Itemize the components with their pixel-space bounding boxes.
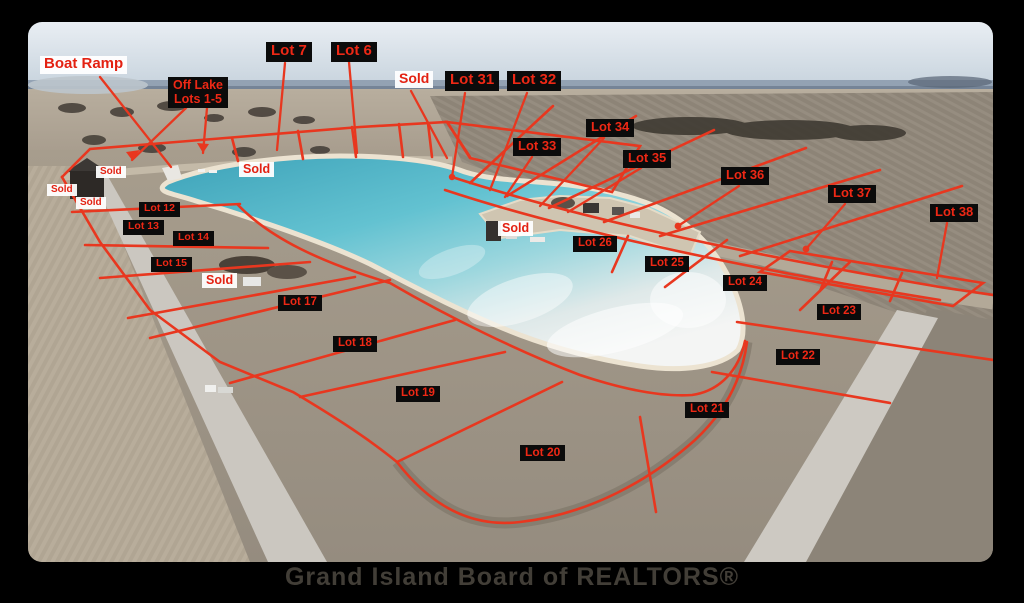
lot-18-label: Lot 18 xyxy=(333,336,377,352)
off-lake-lots-1-5-label: Off Lake Lots 1-5 xyxy=(168,77,228,108)
lot-36-label: Lot 36 xyxy=(721,167,769,185)
white-shed xyxy=(243,277,261,286)
lot-19-label: Lot 19 xyxy=(396,386,440,402)
lot-20-label: Lot 20 xyxy=(520,445,565,461)
lot-26-label: Lot 26 xyxy=(573,236,617,252)
lot-34-label: Lot 34 xyxy=(586,119,634,137)
sold-b-label: Sold xyxy=(47,184,77,196)
lot-32-label: Lot 32 xyxy=(507,71,561,91)
lot-33-label: Lot 33 xyxy=(513,138,561,156)
lot-31-label: Lot 31 xyxy=(445,71,499,91)
lot-38-label: Lot 38 xyxy=(930,204,978,222)
lot-17-label: Lot 17 xyxy=(278,295,322,311)
sold-center-label: Sold xyxy=(498,221,533,236)
distant-lake xyxy=(28,76,148,94)
listing-photo-frame: Boat RampOff Lake Lots 1-5Lot 7Lot 6Sold… xyxy=(0,0,1024,603)
lot-35-label: Lot 35 xyxy=(623,150,671,168)
sold-north-shore-label: Sold xyxy=(239,162,274,177)
lot-7-label: Lot 7 xyxy=(266,42,312,62)
sold-top-label: Sold xyxy=(395,71,433,88)
lot-37-label: Lot 37 xyxy=(828,185,876,203)
lot-21-label: Lot 21 xyxy=(685,402,729,418)
lot-14-label: Lot 14 xyxy=(173,231,214,246)
watermark-text: Grand Island Board of REALTORS® xyxy=(0,563,1024,593)
sold-c-label: Sold xyxy=(76,197,106,209)
lot-12-label: Lot 12 xyxy=(139,202,180,217)
lot-24-label: Lot 24 xyxy=(723,275,767,291)
lot-13-label: Lot 13 xyxy=(123,220,164,235)
lot-23-label: Lot 23 xyxy=(817,304,861,320)
lot-25-label: Lot 25 xyxy=(645,256,689,272)
truck xyxy=(205,385,216,392)
lot-22-label: Lot 22 xyxy=(776,349,820,365)
sold-a-label: Sold xyxy=(96,166,126,178)
lot-6-label: Lot 6 xyxy=(331,42,377,62)
boat-ramp-label: Boat Ramp xyxy=(40,56,127,74)
lot-15-label: Lot 15 xyxy=(151,257,192,272)
sold-16-label: Sold xyxy=(202,273,237,288)
